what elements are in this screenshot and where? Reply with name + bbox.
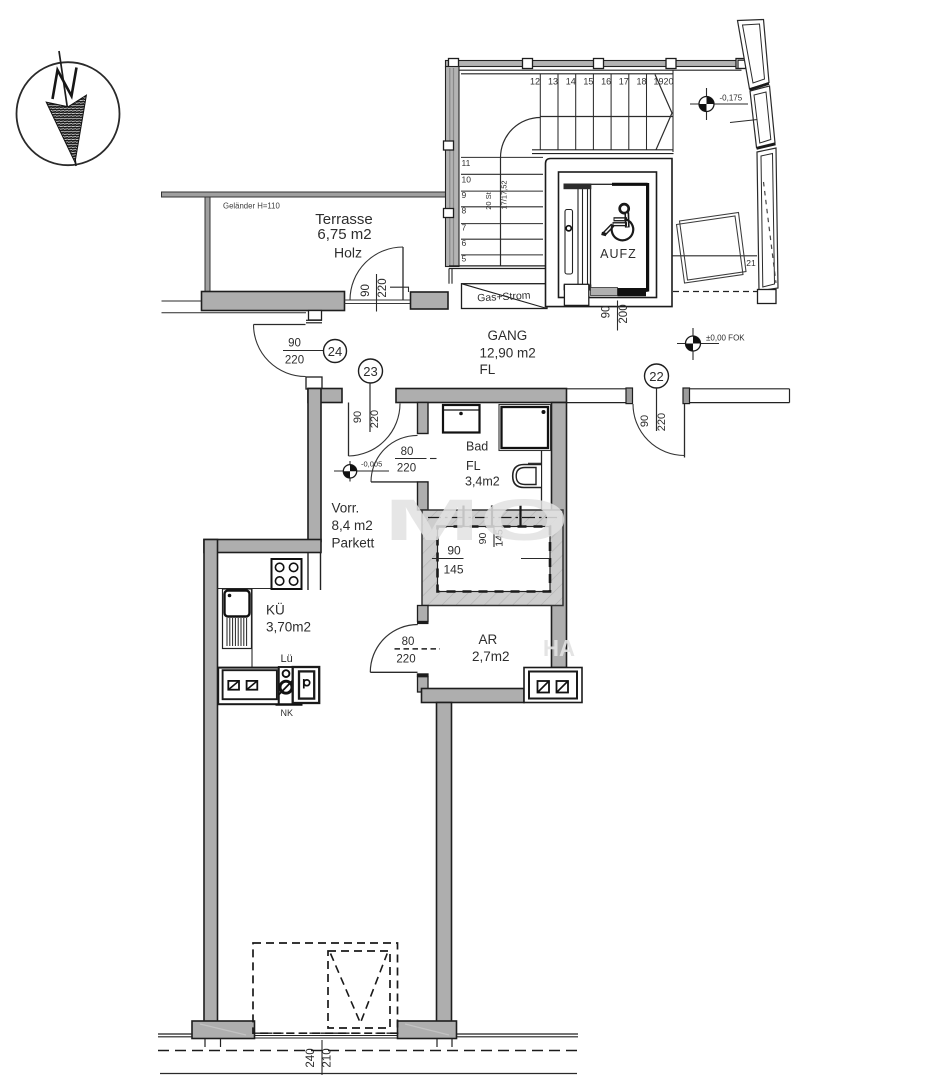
svg-text:Vorr.: Vorr. (332, 501, 360, 516)
svg-text:3,4m2: 3,4m2 (465, 475, 500, 489)
svg-text:2,7m2: 2,7m2 (472, 649, 510, 664)
svg-text:90: 90 (639, 415, 651, 427)
svg-text:220: 220 (656, 413, 668, 431)
svg-text:21: 21 (746, 258, 756, 268)
svg-text:±0,00 FOK: ±0,00 FOK (706, 334, 745, 343)
svg-text:90: 90 (288, 338, 301, 350)
svg-text:HA: HA (543, 635, 575, 661)
svg-text:20 St: 20 St (484, 191, 493, 209)
svg-text:90: 90 (352, 411, 364, 423)
svg-text:5: 5 (462, 254, 467, 264)
svg-text:Geländer H=110: Geländer H=110 (223, 202, 281, 211)
svg-text:22: 22 (649, 369, 663, 384)
svg-text:AR: AR (479, 632, 498, 647)
svg-text:15: 15 (583, 77, 593, 87)
svg-text:80: 80 (401, 446, 414, 458)
svg-text:Holz: Holz (334, 245, 362, 261)
svg-text:220: 220 (396, 654, 415, 666)
svg-text:12,90 m2: 12,90 m2 (480, 346, 536, 361)
svg-text:GANG: GANG (488, 328, 528, 343)
svg-text:8: 8 (462, 206, 467, 216)
svg-text:8,4 m2: 8,4 m2 (332, 518, 373, 533)
svg-text:23: 23 (363, 364, 377, 379)
svg-text:20: 20 (663, 77, 673, 87)
svg-text:9: 9 (462, 190, 467, 200)
svg-text:80: 80 (402, 636, 415, 648)
svg-text:NK: NK (281, 708, 294, 718)
svg-text:6: 6 (462, 238, 467, 248)
svg-text:220: 220 (285, 355, 304, 367)
svg-text:-0,175: -0,175 (720, 94, 743, 103)
svg-text:14: 14 (566, 77, 576, 87)
svg-text:16: 16 (601, 77, 611, 87)
svg-text:12: 12 (530, 77, 540, 87)
svg-text:18: 18 (636, 77, 646, 87)
svg-text:11: 11 (462, 158, 471, 168)
svg-text:7: 7 (462, 223, 467, 233)
svg-text:200: 200 (618, 304, 630, 323)
svg-text:6,75 m2: 6,75 m2 (317, 226, 371, 243)
svg-text:3,70m2: 3,70m2 (266, 620, 311, 635)
svg-text:90: 90 (601, 306, 613, 319)
svg-text:KÜ: KÜ (266, 603, 285, 618)
svg-text:-0,005: -0,005 (361, 460, 382, 469)
svg-text:24: 24 (328, 344, 342, 359)
svg-text:13: 13 (548, 77, 558, 87)
svg-text:145: 145 (443, 563, 463, 577)
svg-text:220: 220 (397, 463, 416, 475)
svg-text:17/17,52: 17/17,52 (500, 180, 509, 209)
svg-text:17: 17 (619, 77, 629, 87)
svg-text:Lü: Lü (281, 653, 293, 665)
svg-text:FL: FL (466, 459, 481, 473)
svg-text:Bad: Bad (466, 440, 488, 454)
svg-text:220: 220 (369, 410, 381, 428)
svg-text:10: 10 (462, 175, 472, 185)
svg-text:FL: FL (480, 362, 496, 377)
svg-text:220: 220 (377, 278, 389, 297)
svg-text:Parkett: Parkett (332, 536, 375, 551)
svg-text:MO: MO (384, 488, 569, 553)
svg-text:AUFZ: AUFZ (600, 247, 637, 261)
svg-text:90: 90 (360, 284, 372, 297)
